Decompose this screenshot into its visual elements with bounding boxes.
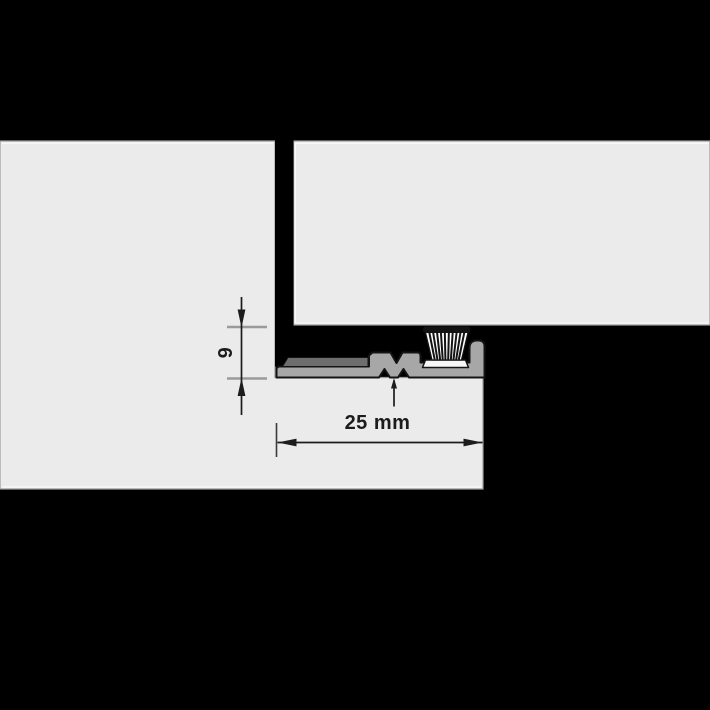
bristle-line bbox=[445, 331, 446, 360]
profile-insert-strip bbox=[283, 358, 369, 367]
width-dimension-label: 25 mm bbox=[345, 412, 411, 434]
diagram-canvas: 6 25 mm bbox=[0, 0, 710, 710]
masonry-right bbox=[294, 141, 710, 325]
threshold-cross-section-diagram: 6 25 mm bbox=[0, 0, 710, 710]
brush-holder-plate bbox=[423, 360, 469, 368]
brush-crimp-band bbox=[423, 327, 471, 334]
bristle-line bbox=[448, 331, 449, 360]
door-leaf bbox=[275, 0, 294, 358]
height-dimension-label: 6 bbox=[213, 347, 235, 359]
